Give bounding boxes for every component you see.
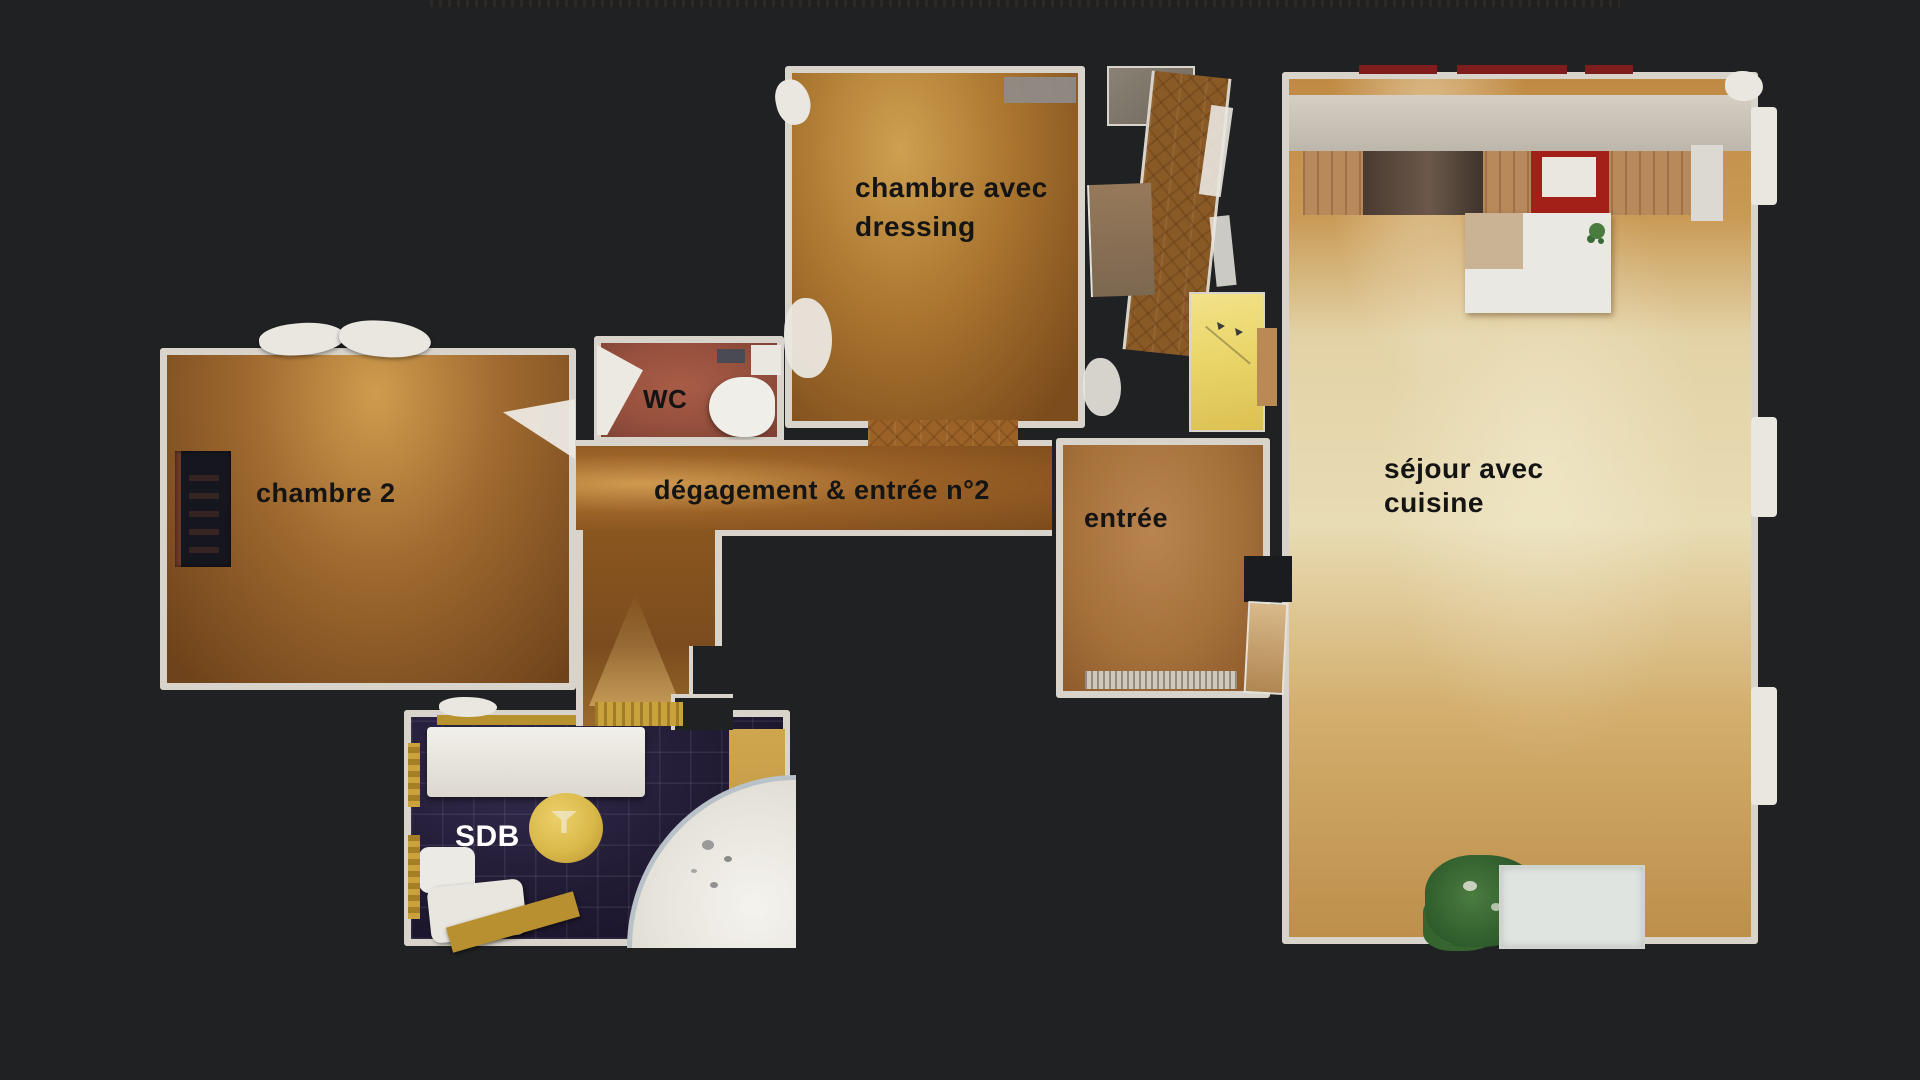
- label-sdb: SDB: [455, 820, 520, 853]
- label-text: entrée: [1084, 503, 1168, 533]
- kitchen-counter: [1303, 151, 1723, 215]
- zone-dressing-corridor: [1085, 66, 1277, 428]
- wc-shelf: [751, 345, 781, 375]
- label-line: cuisine: [1384, 486, 1544, 520]
- entree-door-leaf: [1244, 601, 1289, 695]
- label-line: dressing: [855, 207, 1048, 246]
- cistern-dark: [717, 349, 745, 363]
- label-chambre-2: chambre 2: [256, 477, 396, 510]
- gold-trim-left: [408, 835, 420, 919]
- radiator-bump: [1751, 687, 1777, 805]
- room-chambre-dressing: [785, 66, 1085, 428]
- counter-red-stove: [1531, 151, 1609, 215]
- wall-fragment: [1083, 358, 1121, 416]
- label-text: WC: [643, 384, 687, 414]
- label-sejour-cuisine: séjour avec cuisine: [1384, 452, 1544, 520]
- curtain-fabric: [338, 318, 432, 360]
- wall-fragment: [439, 697, 497, 717]
- room-chambre-2: [160, 348, 576, 690]
- corner-fragment: [1725, 71, 1763, 101]
- doormat: [1085, 671, 1237, 689]
- curtain-fabric: [258, 319, 346, 358]
- doorway-patch: [868, 420, 1018, 446]
- bath-stool-gold: [529, 793, 603, 863]
- backsplash-red-segment: [1585, 65, 1633, 74]
- kitchen-wall-band: [1289, 95, 1751, 151]
- wardrobe-mirror: [1087, 183, 1155, 297]
- label-text: chambre 2: [256, 478, 396, 508]
- counter-dark-section: [1363, 151, 1483, 215]
- label-chambre-dressing: chambre avec dressing: [855, 168, 1048, 246]
- fireplace: [175, 451, 231, 567]
- corridor-vertical: [576, 530, 722, 726]
- threshold-tab: [1257, 328, 1277, 406]
- label-line: séjour avec: [1384, 452, 1544, 486]
- entree-door-notch: [1244, 556, 1292, 602]
- backsplash-red-segment: [1359, 65, 1437, 74]
- yellow-floor-patch: [1189, 292, 1265, 432]
- backsplash-red-segment: [1457, 65, 1567, 74]
- label-text: SDB: [455, 820, 520, 853]
- radiator-bump: [1751, 107, 1777, 205]
- radiator-bump: [1751, 417, 1777, 517]
- floor-mat: [1499, 865, 1645, 949]
- gold-trim-left: [408, 743, 420, 807]
- room-entree: [1056, 438, 1270, 698]
- table-plant: [1589, 223, 1605, 239]
- vanity-counter: [427, 727, 645, 797]
- label-text: dégagement & entrée n°2: [654, 475, 990, 505]
- room-wc: [594, 336, 784, 444]
- label-degagement: dégagement & entrée n°2: [654, 474, 990, 507]
- floorplan-canvas: chambre avec dressing WC chambre 2 dégag…: [0, 0, 1920, 1080]
- upper-floor-cutoff-strip: [430, 0, 1620, 7]
- parquet-floor: [792, 73, 1078, 421]
- parquet-floor: [1063, 445, 1263, 691]
- closet-top: [1004, 77, 1076, 103]
- label-wc: WC: [643, 383, 687, 416]
- appliance-white: [1691, 145, 1723, 221]
- island-table: [1465, 213, 1611, 313]
- door-swing-white: [784, 298, 832, 378]
- threshold-gold: [595, 702, 683, 726]
- toilet: [709, 377, 775, 437]
- wall-fragment: [1209, 215, 1236, 287]
- label-line: chambre avec: [855, 168, 1048, 207]
- label-entree: entrée: [1084, 502, 1168, 535]
